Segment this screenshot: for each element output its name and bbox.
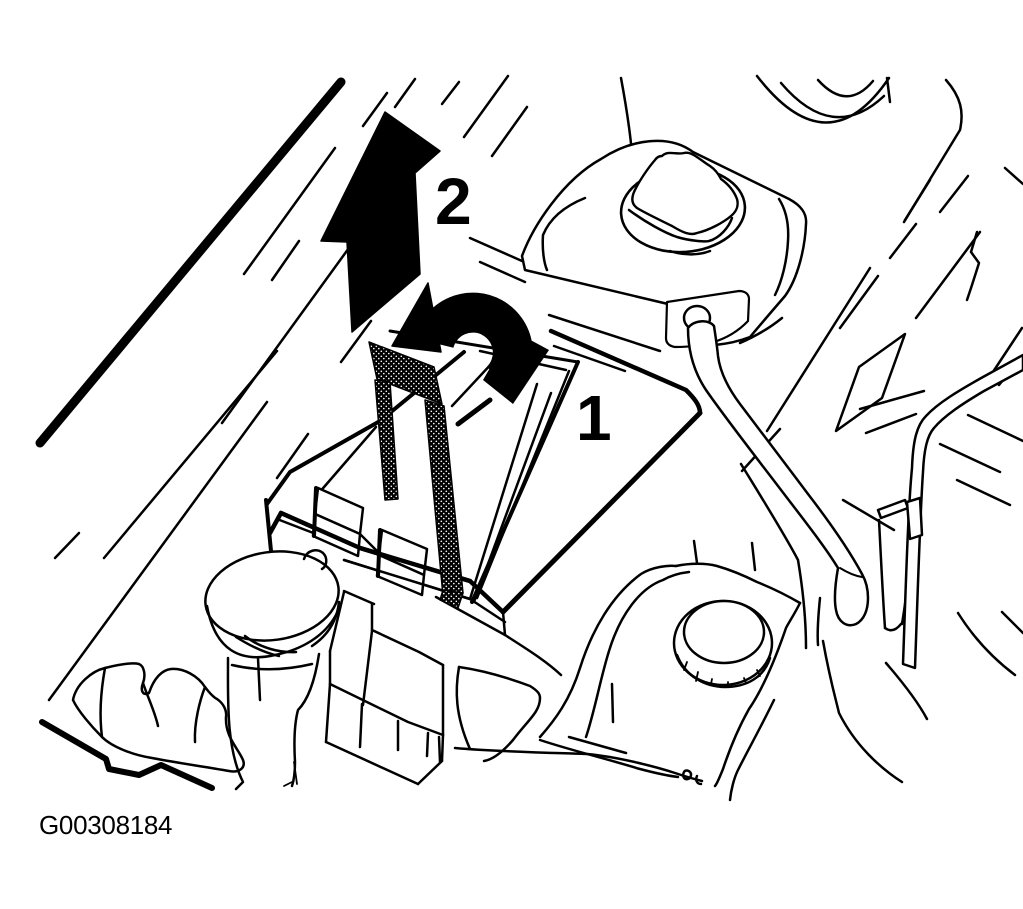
svg-text:1: 1 <box>576 382 612 454</box>
svg-text:G00308184: G00308184 <box>39 810 172 840</box>
svg-text:2: 2 <box>435 164 472 238</box>
